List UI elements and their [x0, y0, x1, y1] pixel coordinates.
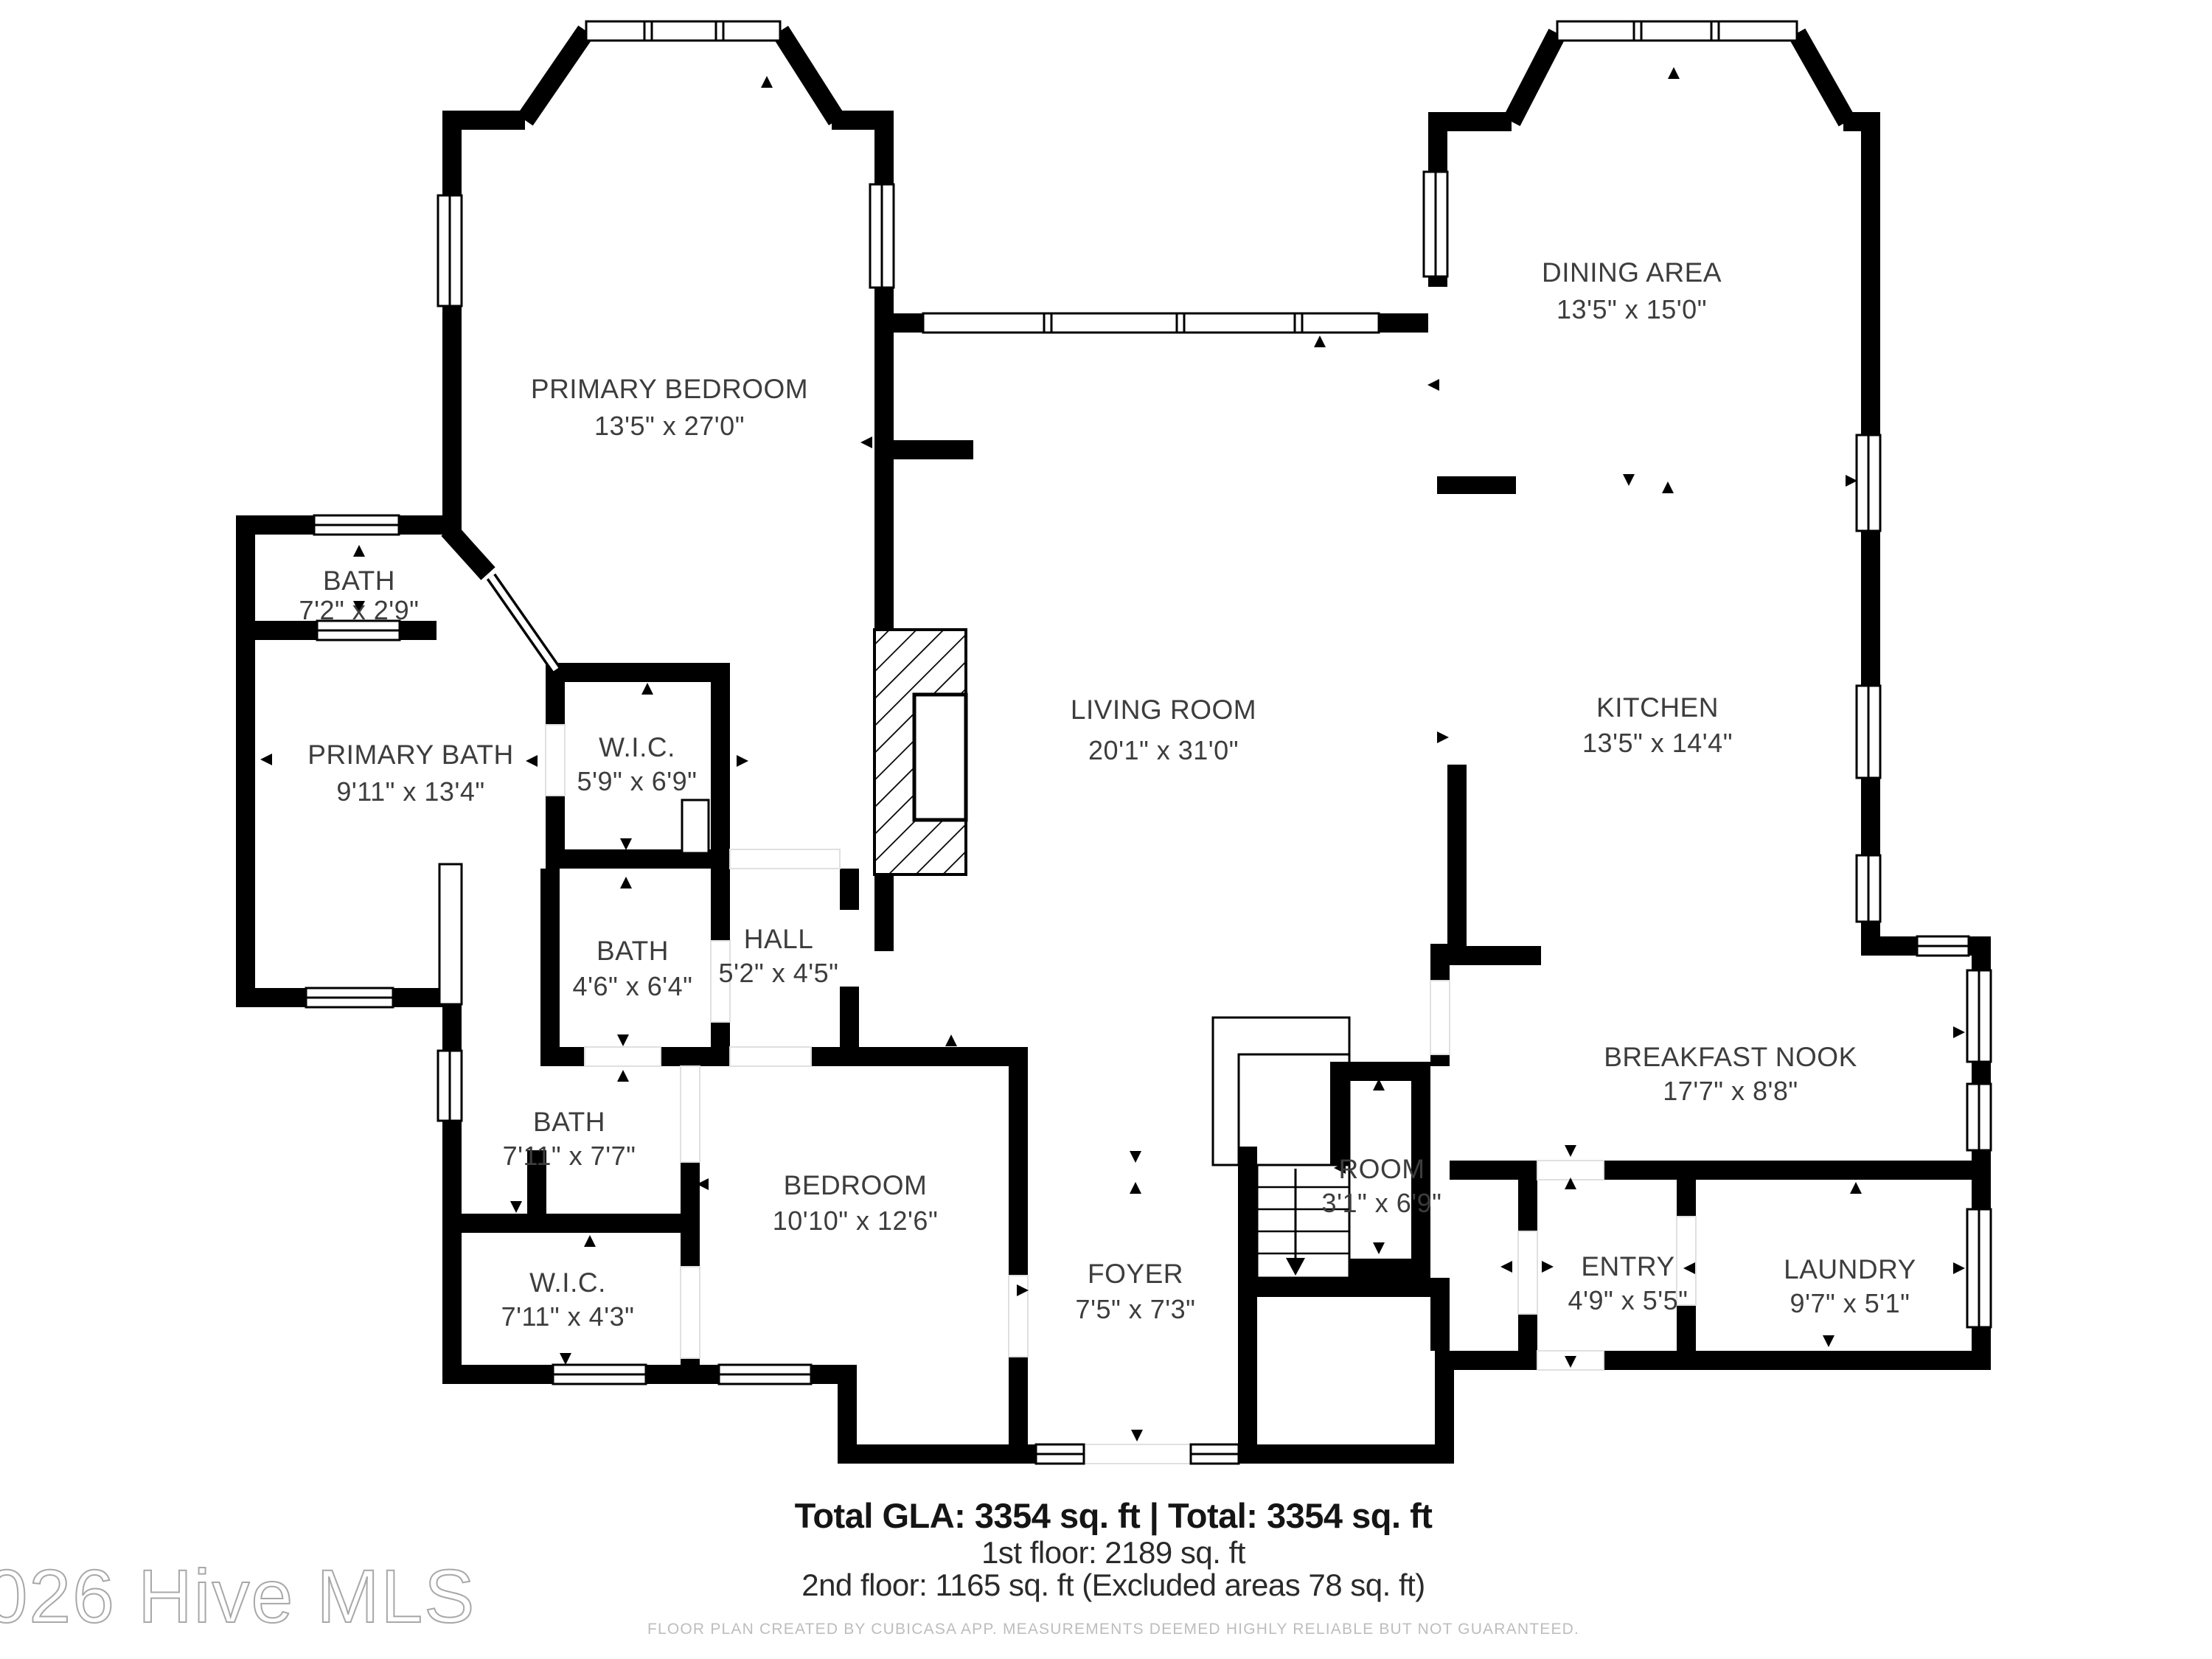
room-label-foyer: FOYER	[1088, 1259, 1183, 1289]
floor-plan-canvas: PRIMARY BEDROOM 13'5" x 27'0" DINING ARE…	[0, 0, 2212, 1659]
window	[438, 195, 462, 306]
room-dims-kitchen: 13'5" x 14'4"	[1582, 728, 1733, 758]
window	[1917, 936, 1969, 956]
room-label-primary-bath: PRIMARY BATH	[307, 740, 513, 770]
room-dims-bath-2: 4'6" x 6'4"	[573, 971, 693, 1001]
staircase-symbol	[1213, 1018, 1349, 1278]
room-label-breakfast-nook: BREAKFAST NOOK	[1604, 1042, 1857, 1072]
disclaimer-text: FLOOR PLAN CREATED BY CUBICASA APP. MEAS…	[647, 1621, 1579, 1638]
room-dims-living-room: 20'1" x 31'0"	[1088, 735, 1239, 765]
window	[1857, 855, 1880, 922]
second-floor-area-text: 2nd floor: 1165 sq. ft (Excluded areas 7…	[801, 1568, 1425, 1602]
room-dims-bath-1: 7'2" x 2'9"	[299, 595, 420, 625]
room-label-dining-area: DINING AREA	[1542, 257, 1722, 288]
room-label-entry: ENTRY	[1581, 1251, 1674, 1281]
window	[870, 184, 894, 288]
window	[553, 1365, 646, 1384]
room-dims-wic-2: 7'11" x 4'3"	[501, 1301, 635, 1332]
fireplace-symbol	[874, 630, 966, 874]
window	[1967, 970, 1991, 1062]
room-label-wic-1: W.I.C.	[599, 732, 675, 762]
window	[306, 988, 393, 1007]
room-dims-bedroom: 10'10" x 12'6"	[773, 1206, 938, 1236]
front-door-sidelight	[1191, 1444, 1239, 1464]
room-label-hall: HALL	[744, 924, 814, 954]
window	[1967, 1209, 1991, 1327]
living-room-window-band	[923, 313, 1379, 333]
room-dims-dining-area: 13'5" x 15'0"	[1557, 294, 1707, 324]
room-dims-primary-bedroom: 13'5" x 27'0"	[594, 411, 745, 441]
room-dims-hall: 5'2" x 4'5"	[719, 958, 839, 988]
room-dims-bath-3: 7'11" x 7'7"	[503, 1141, 636, 1171]
room-dims-primary-bath: 9'11" x 13'4"	[336, 776, 484, 807]
room-label-bath-3: BATH	[533, 1107, 605, 1137]
window	[719, 1365, 811, 1384]
door-leaf-diagonal	[491, 577, 556, 669]
footer-summary: Total GLA: 3354 sq. ft | Total: 3354 sq.…	[647, 1496, 1579, 1638]
room-label-bedroom: BEDROOM	[784, 1170, 928, 1200]
room-label-wic-2: W.I.C.	[529, 1267, 606, 1298]
window	[438, 1051, 462, 1121]
window	[1967, 1084, 1991, 1150]
room-dims-room: 3'1" x 6'9"	[1322, 1188, 1442, 1218]
window	[1857, 435, 1880, 531]
room-label-bath-1: BATH	[323, 566, 395, 596]
room-label-kitchen: KITCHEN	[1596, 692, 1719, 723]
room-dims-wic-1: 5'9" x 6'9"	[577, 766, 698, 796]
bay-window-right	[1557, 21, 1797, 41]
bay-window-left	[586, 21, 780, 41]
room-dims-laundry: 9'7" x 5'1"	[1790, 1288, 1910, 1318]
room-dims-entry: 4'9" x 5'5"	[1568, 1285, 1688, 1315]
floor-plan-page: PRIMARY BEDROOM 13'5" x 27'0" DINING ARE…	[0, 0, 2212, 1659]
room-label-living-room: LIVING ROOM	[1071, 695, 1256, 725]
room-label-room: ROOM	[1338, 1154, 1425, 1184]
front-door-sidelight	[1036, 1444, 1084, 1464]
total-area-text: Total GLA: 3354 sq. ft | Total: 3354 sq.…	[795, 1496, 1433, 1535]
room-label-laundry: LAUNDRY	[1784, 1254, 1916, 1284]
first-floor-area-text: 1st floor: 2189 sq. ft	[981, 1535, 1246, 1570]
room-dims-foyer: 7'5" x 7'3"	[1076, 1294, 1196, 1324]
room-dims-breakfast-nook: 17'7" x 8'8"	[1663, 1076, 1798, 1106]
window	[314, 515, 399, 535]
room-label-bath-2: BATH	[597, 936, 669, 966]
room-label-primary-bedroom: PRIMARY BEDROOM	[531, 374, 808, 404]
watermark: ©2026 Hive MLS	[0, 1554, 476, 1638]
window	[1857, 686, 1880, 778]
window	[1424, 172, 1447, 276]
